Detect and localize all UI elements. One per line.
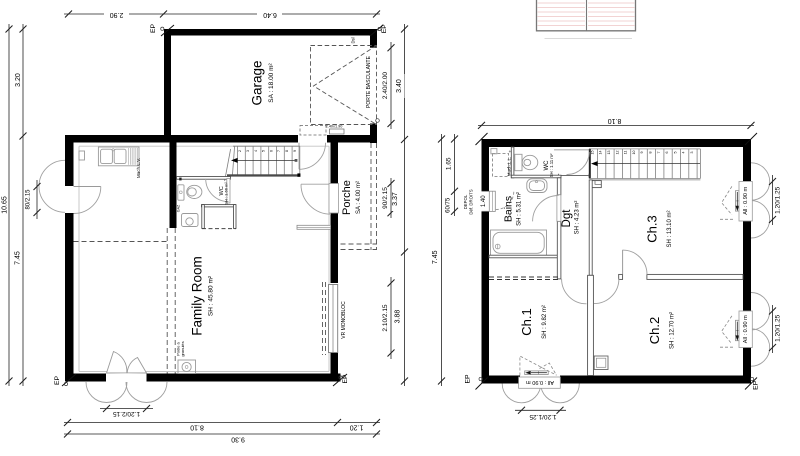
svg-text:1.20/1.25: 1.20/1.25	[775, 314, 782, 341]
svg-text:9.30: 9.30	[231, 435, 245, 442]
svg-text:1.20/1.25: 1.20/1.25	[775, 186, 782, 213]
svg-text:14: 14	[599, 151, 603, 155]
svg-text:granulés: granulés	[180, 341, 185, 356]
svg-text:Mach.L.L.: Mach.L.L.	[506, 157, 511, 176]
svg-text:1.20/2.15: 1.20/2.15	[113, 410, 140, 417]
svg-text:SH : 1.11 m²: SH : 1.11 m²	[549, 153, 554, 177]
svg-text:11: 11	[624, 151, 628, 155]
svg-text:EP: EP	[150, 24, 157, 34]
svg-text:Family Room: Family Room	[190, 256, 205, 336]
svg-text:90/2.15: 90/2.15	[382, 187, 389, 209]
svg-text:SH : 12.70 m²: SH : 12.70 m²	[670, 312, 676, 349]
svg-text:1.65: 1.65	[446, 157, 453, 170]
svg-text:6: 6	[269, 150, 273, 152]
svg-text:EP: EP	[381, 24, 388, 34]
svg-text:Ch.2: Ch.2	[647, 317, 662, 344]
svg-text:2.90: 2.90	[110, 11, 124, 18]
svg-text:4: 4	[254, 150, 258, 152]
svg-text:SH : 45.80 m²: SH : 45.80 m²	[208, 275, 215, 316]
svg-text:Ch.1: Ch.1	[519, 308, 534, 335]
svg-text:13: 13	[607, 151, 611, 155]
svg-text:2.40/2.00: 2.40/2.00	[382, 72, 389, 99]
svg-text:8: 8	[285, 150, 289, 152]
svg-text:12: 12	[615, 151, 619, 155]
svg-text:9: 9	[293, 150, 297, 152]
svg-text:3: 3	[690, 152, 694, 154]
svg-text:VR MONOBLOC: VR MONOBLOC	[341, 301, 347, 339]
svg-text:15: 15	[591, 151, 595, 155]
svg-text:All : 0.90 m: All : 0.90 m	[743, 315, 749, 343]
svg-text:8.10: 8.10	[190, 424, 204, 431]
svg-text:SA : 4.00 m²: SA : 4.00 m²	[356, 181, 362, 214]
svg-text:2.40x1.90: 2.40x1.90	[326, 125, 343, 129]
svg-text:6: 6	[665, 152, 669, 154]
svg-text:Porche: Porche	[341, 180, 353, 215]
svg-text:SH : 13.10 m²: SH : 13.10 m²	[667, 210, 673, 247]
svg-text:SA : 18.00 m²: SA : 18.00 m²	[268, 62, 275, 102]
svg-text:60/75: 60/75	[446, 197, 452, 213]
svg-text:SH : 5.31 m²: SH : 5.31 m²	[517, 192, 523, 226]
svg-text:GAZ: GAZ	[177, 204, 181, 212]
svg-text:PORTE BASCULANTE: PORTE BASCULANTE	[366, 55, 372, 108]
svg-text:1.20/1.25: 1.20/1.25	[529, 413, 556, 420]
svg-text:DEPOL: DEPOL	[463, 194, 468, 209]
svg-text:80/2.15: 80/2.15	[26, 189, 32, 210]
svg-text:Dsl: Dsl	[351, 37, 356, 43]
svg-text:+: +	[509, 149, 512, 154]
svg-text:1.20: 1.20	[350, 424, 364, 431]
svg-text:10.65: 10.65	[2, 196, 9, 214]
svg-text:6.40: 6.40	[263, 11, 277, 18]
svg-text:SH : 9.82 m²: SH : 9.82 m²	[542, 305, 548, 339]
svg-text:Bains: Bains	[502, 196, 514, 222]
svg-text:2.10/2.15: 2.10/2.15	[382, 304, 389, 331]
svg-text:3.88: 3.88	[394, 310, 401, 324]
svg-text:3.40: 3.40	[396, 79, 403, 93]
svg-text:9: 9	[640, 152, 644, 154]
svg-text:1.40: 1.40	[481, 195, 487, 207]
svg-text:EP: EP	[753, 380, 760, 390]
svg-text:Mach.L.V.: Mach.L.V.	[136, 158, 141, 178]
svg-text:8.10: 8.10	[608, 117, 622, 124]
svg-text:5: 5	[673, 152, 677, 154]
svg-text:SH : 4.23 m²: SH : 4.23 m²	[575, 201, 581, 235]
svg-text:5: 5	[262, 150, 266, 152]
svg-text:3: 3	[246, 150, 250, 152]
svg-text:EP: EP	[465, 374, 472, 384]
svg-text:7.45: 7.45	[15, 251, 22, 265]
svg-text:4: 4	[682, 152, 686, 154]
svg-text:7: 7	[277, 150, 281, 152]
svg-text:All : 0.90 m: All : 0.90 m	[526, 379, 554, 385]
svg-text:Garage: Garage	[250, 60, 265, 105]
svg-text:Dgt: Dgt	[561, 209, 573, 228]
svg-text:EP: EP	[54, 376, 61, 386]
svg-text:EP: EP	[342, 374, 349, 384]
svg-text:Ch.3: Ch.3	[645, 215, 660, 242]
svg-text:8: 8	[649, 152, 653, 154]
svg-text:7.45: 7.45	[432, 250, 439, 264]
svg-text:3.20: 3.20	[15, 73, 22, 87]
svg-text:3.37: 3.37	[392, 192, 399, 206]
svg-text:10: 10	[632, 151, 636, 155]
svg-text:2: 2	[238, 150, 242, 152]
svg-text:Déf. DROITS: Déf. DROITS	[468, 189, 473, 214]
svg-text:7: 7	[657, 152, 661, 154]
svg-text:All : 0.90 m: All : 0.90 m	[743, 186, 749, 214]
svg-text:SH : 1.66 m²: SH : 1.66 m²	[223, 182, 228, 205]
